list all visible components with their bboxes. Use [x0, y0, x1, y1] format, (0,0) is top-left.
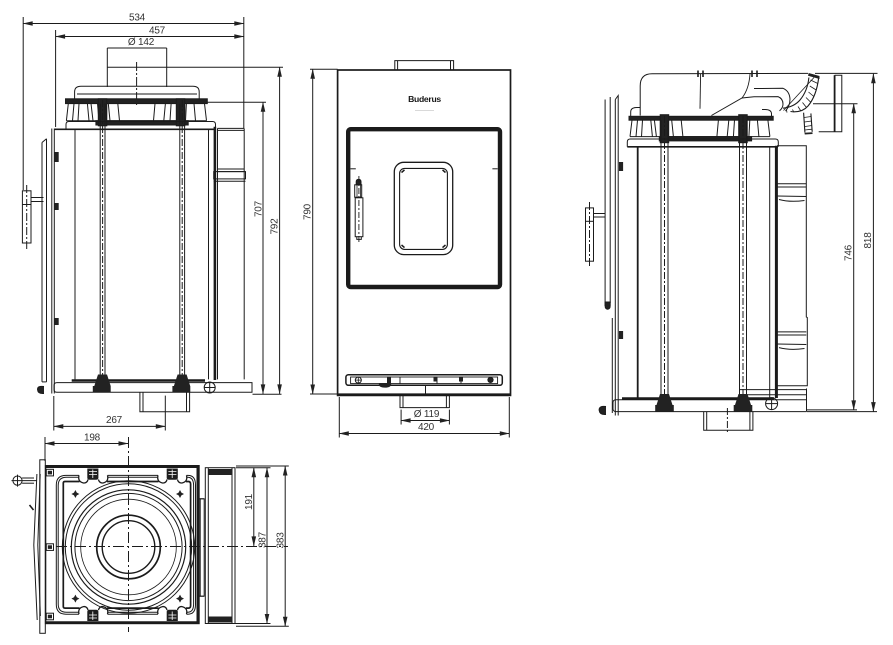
svg-text:Ø 119: Ø 119 — [414, 409, 440, 420]
svg-text:Buderus: Buderus — [408, 94, 441, 104]
svg-text:Ø 142: Ø 142 — [128, 37, 155, 48]
svg-text:191: 191 — [244, 493, 255, 510]
svg-text:457: 457 — [149, 26, 166, 37]
svg-text:420: 420 — [418, 422, 435, 433]
svg-text:267: 267 — [106, 415, 123, 426]
svg-text:387: 387 — [257, 531, 268, 548]
svg-text:198: 198 — [84, 433, 101, 444]
svg-text:818: 818 — [863, 232, 874, 249]
svg-text:790: 790 — [303, 203, 314, 220]
svg-text:383: 383 — [276, 532, 287, 549]
svg-text:534: 534 — [129, 13, 146, 24]
svg-text:792: 792 — [269, 218, 280, 235]
svg-text:707: 707 — [253, 200, 264, 217]
svg-text:746: 746 — [844, 244, 855, 261]
